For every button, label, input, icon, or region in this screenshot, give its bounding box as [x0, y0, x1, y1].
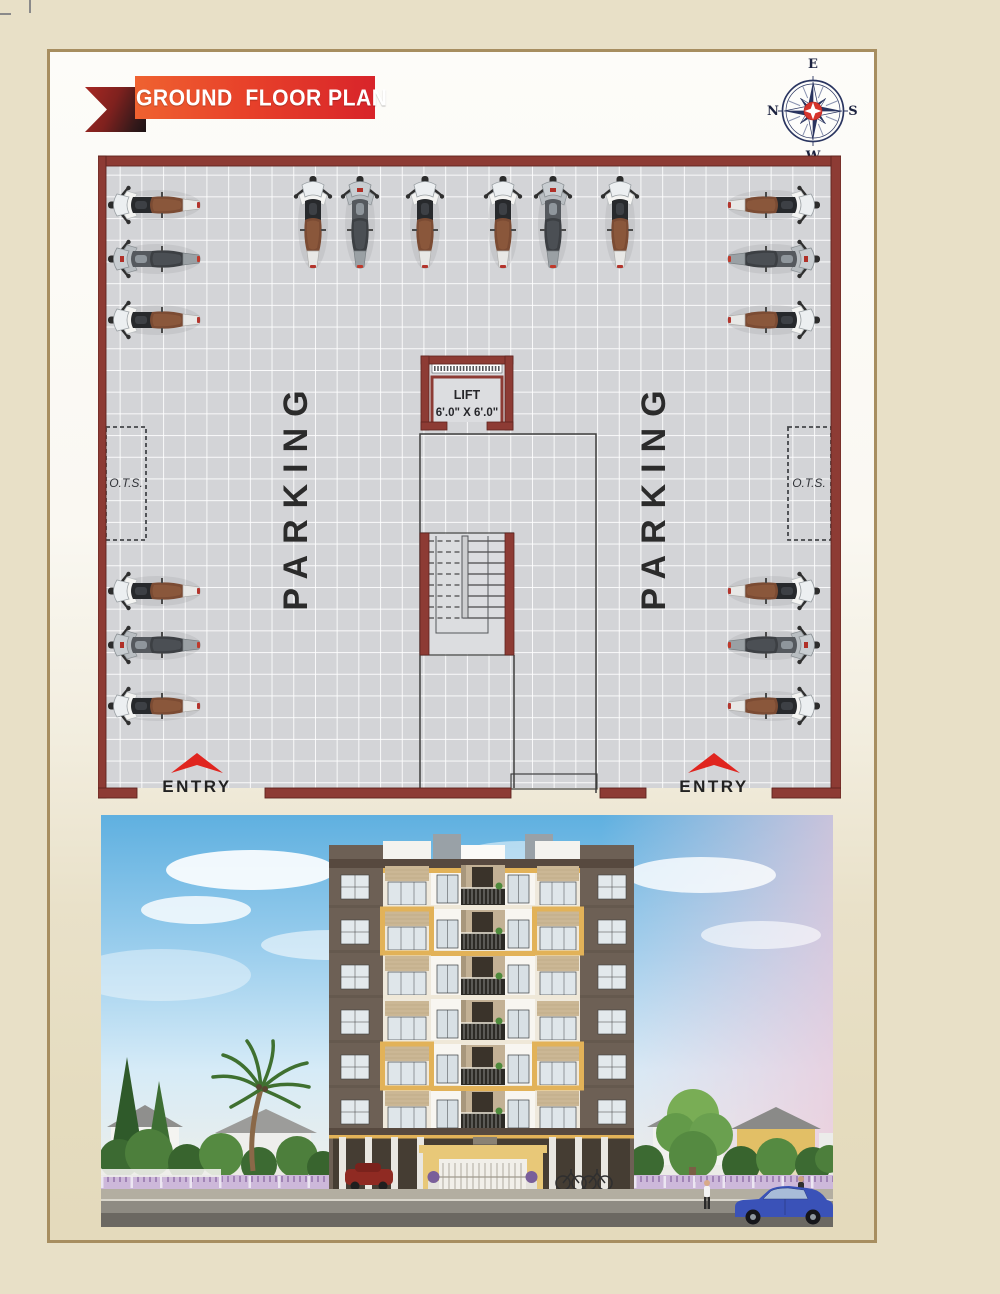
compass-label-south: S: [848, 104, 857, 119]
crop-mark: [0, 13, 11, 15]
tile-floor: [106, 166, 831, 788]
building-elevation-photo: [101, 815, 833, 1227]
entry-label-left: ENTRY: [162, 777, 232, 796]
ribbon-band: GROUND FLOOR PLAN: [135, 76, 375, 119]
lift: LIFT 6'.0" X 6'.0": [421, 356, 513, 430]
road: [101, 1189, 833, 1227]
parking-label-right: PARKING: [635, 379, 673, 610]
lift-label: LIFT: [454, 388, 481, 402]
page-title: GROUND FLOOR PLAN: [123, 84, 388, 112]
parking-label-left: PARKING: [277, 379, 315, 610]
compass-label-north: N: [767, 104, 779, 119]
staircase: [420, 533, 514, 655]
apartment-building: [329, 834, 634, 1195]
compass-label-east: E: [808, 57, 818, 72]
floor-plan: O.T.S. O.T.S.: [98, 153, 841, 799]
ots-label-right: O.T.S.: [792, 476, 826, 490]
lift-dimensions: 6'.0" X 6'.0": [436, 407, 498, 419]
crop-mark: [29, 0, 31, 13]
entry-label-right: ENTRY: [679, 777, 749, 796]
brochure-page: GROUND FLOOR PLAN E N S W: [47, 49, 877, 1243]
stilt-parking-floor: [329, 1128, 634, 1195]
ots-label-left: O.T.S.: [109, 476, 143, 490]
compass-rose: E N S W: [763, 54, 863, 164]
compass-graphic: [778, 76, 848, 146]
